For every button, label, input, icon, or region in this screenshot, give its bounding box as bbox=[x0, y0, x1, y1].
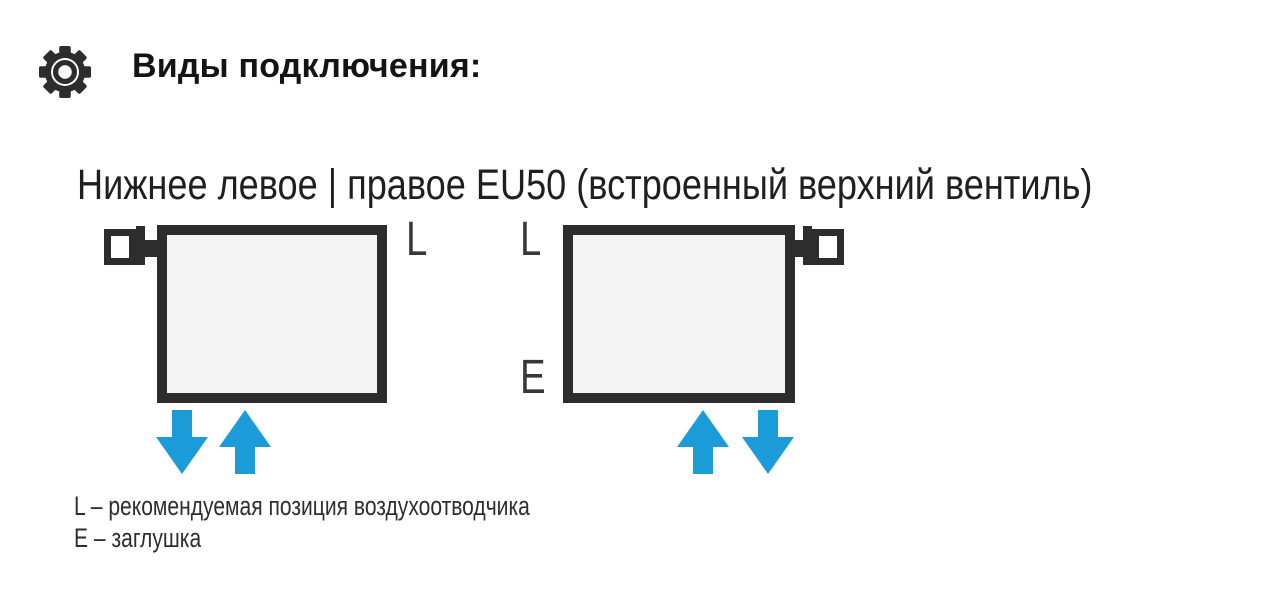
legend-line-air-vent: L – рекомендуемая позиция воздухоотводчи… bbox=[74, 490, 530, 522]
air-vent-label-right: L bbox=[520, 216, 541, 264]
radiator-right bbox=[563, 225, 795, 403]
arrow-up-icon bbox=[677, 410, 729, 474]
page-title: Виды подключения: bbox=[132, 47, 481, 86]
valve-stem-icon bbox=[803, 226, 812, 265]
valve-stem-icon bbox=[136, 226, 145, 265]
arrow-down-icon bbox=[156, 410, 208, 474]
valve-icon bbox=[812, 229, 844, 265]
plug-label-right: E bbox=[520, 354, 546, 402]
air-vent-label-left: L bbox=[406, 216, 427, 264]
legend-line-plug: E – заглушка bbox=[74, 522, 530, 554]
valve-connector-icon bbox=[790, 240, 803, 257]
legend: L – рекомендуемая позиция воздухоотводчи… bbox=[74, 490, 658, 554]
arrow-up-icon bbox=[219, 410, 271, 474]
connection-subtitle: Нижнее левое | правое EU50 (встроенный в… bbox=[77, 161, 1092, 210]
valve-icon bbox=[104, 229, 136, 265]
radiator-left bbox=[157, 225, 387, 403]
connection-types-diagram: Виды подключения: Нижнее левое | правое … bbox=[0, 0, 1280, 589]
gear-icon bbox=[38, 45, 92, 99]
arrow-down-icon bbox=[742, 410, 794, 474]
